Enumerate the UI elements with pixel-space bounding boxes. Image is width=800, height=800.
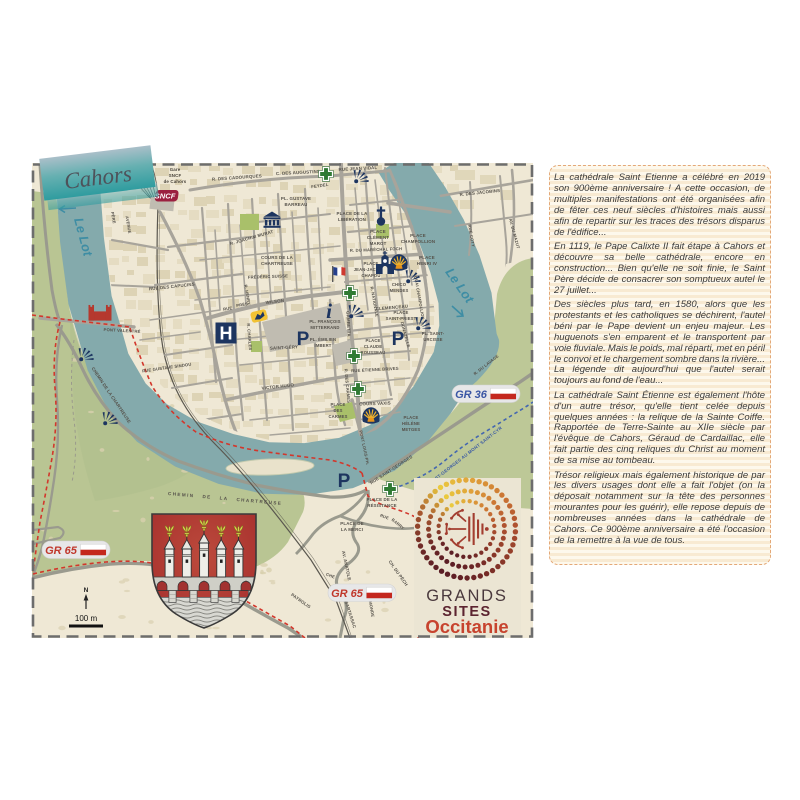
svg-text:ROUSSEAU: ROUSSEAU [361,350,386,355]
svg-text:GRANDS: GRANDS [426,587,507,605]
svg-text:CHICO: CHICO [392,282,407,287]
svg-text:PLACE: PLACE [370,229,386,234]
svg-text:GR 36: GR 36 [455,389,488,401]
svg-text:MENDES: MENDES [390,288,409,293]
svg-text:de Cahors: de Cahors [164,179,187,184]
svg-text:BARREAU: BARREAU [284,202,307,207]
svg-text:PLACE: PLACE [419,255,435,260]
svg-text:PLACE: PLACE [366,338,381,343]
svg-text:PLACE: PLACE [331,402,346,407]
svg-text:P: P [392,329,405,350]
svg-text:PLACE: PLACE [394,310,409,315]
svg-text:CLÉMENT: CLÉMENT [367,235,389,240]
svg-text:SNCF: SNCF [169,173,182,178]
svg-text:CLAUDE: CLAUDE [364,344,382,349]
svg-text:PLACE: PLACE [410,233,426,238]
svg-text:SAINT-PRIEST: SAINT-PRIEST [386,316,417,321]
svg-text:RÉSISTANCE: RÉSISTANCE [367,503,396,508]
svg-text:CHARTREUSE: CHARTREUSE [261,261,293,266]
svg-text:PLACE DE: PLACE DE [340,521,363,526]
svg-text:HÉLÈNE: HÉLÈNE [402,421,420,426]
svg-text:PLACE DE LA: PLACE DE LA [337,211,369,216]
svg-text:H: H [220,323,233,343]
svg-text:PL. SAINT-: PL. SAINT- [422,331,445,336]
svg-text:P: P [338,471,351,492]
svg-text:DES: DES [333,408,342,413]
svg-text:100 m: 100 m [75,614,98,623]
svg-text:CHAMPOLLION: CHAMPOLLION [401,239,435,244]
svg-text:CARMES: CARMES [328,414,347,419]
svg-text:IMBERT: IMBERT [315,343,332,348]
svg-text:PL. ÉMILIEN: PL. ÉMILIEN [310,337,336,342]
svg-text:GR 65: GR 65 [45,545,78,557]
svg-text:PL. FRANÇOIS: PL. FRANÇOIS [309,319,340,324]
svg-text:URCISSE: URCISSE [423,337,442,342]
svg-text:PLACE: PLACE [404,415,419,420]
svg-text:METGES: METGES [402,427,421,432]
svg-text:LA MERCI: LA MERCI [341,527,363,532]
svg-text:PL. GUSTAVE: PL. GUSTAVE [281,196,311,201]
svg-text:MAROT: MAROT [370,241,387,246]
svg-text:Occitanie: Occitanie [425,616,508,637]
svg-text:i: i [326,299,332,323]
svg-text:HENRI IV: HENRI IV [417,261,437,266]
svg-text:MITTERRAND: MITTERRAND [310,325,339,330]
svg-text:N: N [84,587,89,594]
svg-text:LIBÉRATION: LIBÉRATION [338,217,366,222]
svg-text:P: P [297,329,310,350]
svg-text:COURS DE LA: COURS DE LA [261,255,294,260]
svg-text:Gare: Gare [170,167,181,172]
svg-text:GR 65: GR 65 [331,588,364,600]
svg-text:PLACE DE LA: PLACE DE LA [367,497,399,502]
